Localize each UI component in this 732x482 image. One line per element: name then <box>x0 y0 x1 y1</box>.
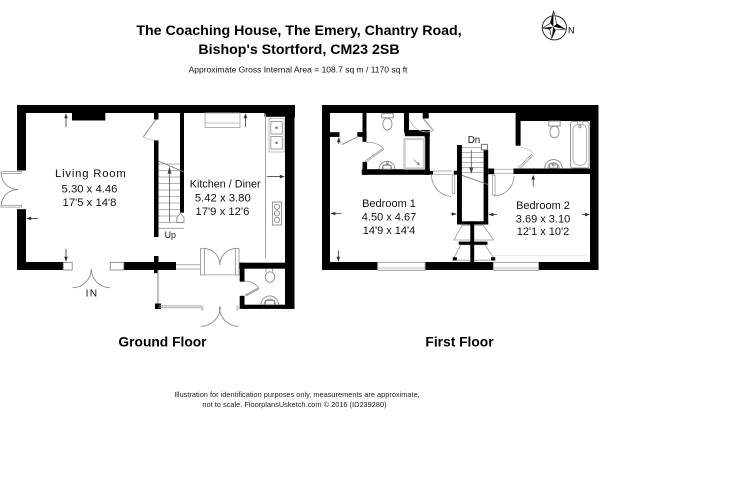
svg-text:not to scale. FloorplansUsketc: not to scale. FloorplansUsketch.com © 20… <box>202 400 386 409</box>
svg-text:Ground Floor: Ground Floor <box>118 334 207 349</box>
svg-text:14'9 x 14'4: 14'9 x 14'4 <box>363 225 416 237</box>
svg-text:12'1 x 10'2: 12'1 x 10'2 <box>517 226 570 238</box>
svg-text:Dn: Dn <box>468 135 481 146</box>
svg-text:3.69 x 3.10: 3.69 x 3.10 <box>516 213 570 225</box>
svg-text:Living Room: Living Room <box>55 168 127 180</box>
svg-text:5.30 x 4.46: 5.30 x 4.46 <box>62 184 118 196</box>
svg-text:First Floor: First Floor <box>425 334 494 349</box>
svg-text:Kitchen / Diner: Kitchen / Diner <box>190 179 261 191</box>
svg-text:17'5 x 14'8: 17'5 x 14'8 <box>63 197 117 209</box>
svg-text:5.42 x 3.80: 5.42 x 3.80 <box>195 193 251 205</box>
svg-text:N: N <box>568 26 575 36</box>
svg-text:4.50 x 4.67: 4.50 x 4.67 <box>362 212 416 224</box>
svg-text:Approximate Gross Internal Are: Approximate Gross Internal Area = 108.7 … <box>189 65 408 75</box>
svg-text:Up: Up <box>165 230 176 240</box>
svg-text:Illustration for identificatio: Illustration for identification purposes… <box>174 390 420 399</box>
svg-text:The Coaching House, The Emery,: The Coaching House, The Emery, Chantry R… <box>136 23 461 39</box>
svg-text:Bedroom 1: Bedroom 1 <box>362 198 416 210</box>
svg-text:IN: IN <box>86 289 99 300</box>
svg-text:Bishop's Stortford, CM23 2SB: Bishop's Stortford, CM23 2SB <box>198 42 399 58</box>
svg-text:17'9 x 12'6: 17'9 x 12'6 <box>195 206 249 218</box>
svg-text:Bedroom 2: Bedroom 2 <box>516 200 570 212</box>
